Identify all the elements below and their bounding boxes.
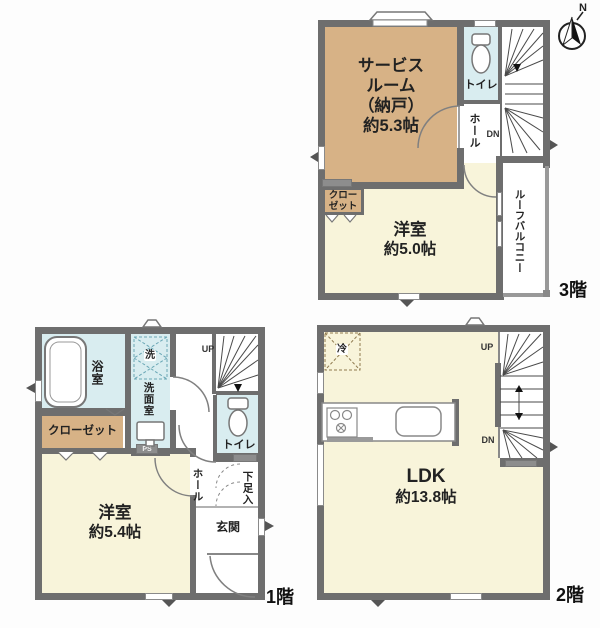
stairs-2f — [500, 334, 543, 458]
vent — [143, 320, 161, 327]
vent-flag — [550, 442, 558, 452]
vent-flag — [310, 152, 318, 162]
shoe-cabinet-label: 下足入 — [242, 466, 253, 510]
floor2-label: 2階 — [548, 585, 592, 607]
sink-icon — [396, 407, 441, 436]
up-label-2f: UP — [477, 342, 497, 353]
closet-label-3f: クロー ゼット — [323, 190, 363, 212]
room-name: LDK — [361, 466, 491, 489]
bath-door-marks — [106, 409, 124, 415]
vent-flag — [371, 600, 385, 607]
bathtub-icon — [45, 337, 86, 407]
roof-balcony-label: ルーフバルコニー — [514, 172, 525, 290]
vent — [466, 318, 484, 325]
compass-icon — [559, 12, 585, 49]
dn-label-3f: DN — [484, 129, 502, 140]
toilet-icon — [472, 34, 490, 73]
toilet-label-3f: トイレ — [462, 79, 500, 92]
bathroom-label: 浴室 — [91, 352, 103, 394]
washer-label: 洗 — [142, 350, 158, 362]
room-size: 約5.0帖 — [340, 240, 480, 260]
sink-icon — [137, 422, 164, 446]
room-name: 洋室 — [50, 503, 180, 523]
room-name: 洋室 — [340, 220, 480, 240]
hall-label-1f: ホール — [192, 460, 203, 510]
floor1-label: 1階 — [258, 587, 302, 609]
vent-flag — [550, 140, 558, 150]
washroom-label: 洗面室 — [143, 376, 154, 422]
stair-arrow — [513, 64, 521, 72]
service-room-label: サービス ルーム （納戸） 約5.3帖 — [325, 56, 457, 136]
vent-flag — [265, 521, 274, 531]
vent-flag — [162, 600, 176, 607]
floor-plan: PS — [0, 0, 600, 628]
bay-window — [370, 12, 432, 20]
stairs-3f — [505, 29, 543, 153]
closet-door-marks — [58, 452, 108, 460]
vent-flag — [400, 300, 414, 307]
room-size: 約13.8帖 — [361, 489, 491, 508]
fridge-label: 冷 — [334, 344, 350, 356]
vent-flag — [26, 383, 35, 393]
closet-line: クロー — [323, 190, 363, 201]
floor3-label: 3階 — [551, 280, 595, 302]
closet-label-1f: クローゼット — [42, 425, 123, 439]
toilet-label-1f: トイレ — [222, 439, 256, 452]
stair-arrow — [515, 413, 523, 420]
entrance-label: 玄関 — [205, 520, 251, 534]
washer-text: 洗 — [144, 350, 156, 361]
fridge-text: 冷 — [336, 344, 348, 355]
western-room-1f-label: 洋室 約5.4帖 — [50, 503, 180, 543]
shoe-cabinet-doors — [216, 464, 240, 506]
toilet-icon — [228, 398, 248, 436]
service-room-line: 約5.3帖 — [325, 116, 457, 136]
ldk-label: LDK 約13.8帖 — [361, 466, 491, 507]
dn-label-2f: DN — [478, 435, 498, 446]
window — [373, 20, 427, 26]
hall-label-3f: ホール — [468, 106, 479, 156]
service-room-line: ルーム — [325, 76, 457, 96]
compass-north-label: N — [576, 2, 590, 15]
kitchen-counter — [322, 403, 455, 442]
service-room-line: サービス — [325, 56, 457, 76]
stairs-1f — [218, 336, 258, 388]
western-room-3f-label: 洋室 約5.0帖 — [340, 220, 480, 260]
balcony-post — [543, 290, 550, 297]
service-room-line: （納戸） — [325, 96, 457, 116]
up-label-1f: UP — [198, 344, 218, 355]
room-size: 約5.4帖 — [50, 523, 180, 543]
stair-arrow — [234, 384, 242, 392]
closet-line: ゼット — [323, 201, 363, 212]
